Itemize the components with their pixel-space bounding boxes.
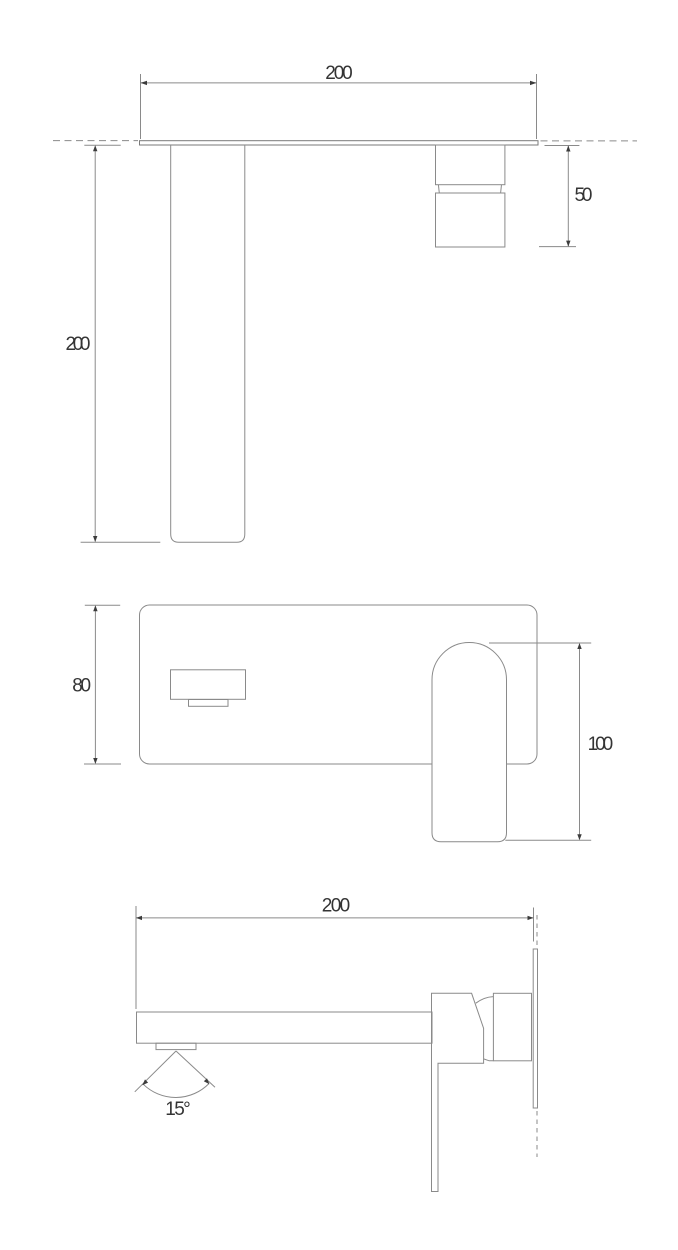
svg-text:200: 200 <box>66 334 91 355</box>
svg-text:100: 100 <box>588 734 614 755</box>
svg-text:200: 200 <box>322 895 351 916</box>
svg-text:200: 200 <box>325 63 353 84</box>
svg-text:50: 50 <box>575 185 593 206</box>
svg-text:80: 80 <box>72 676 91 697</box>
svg-text:15°: 15° <box>165 1099 191 1120</box>
